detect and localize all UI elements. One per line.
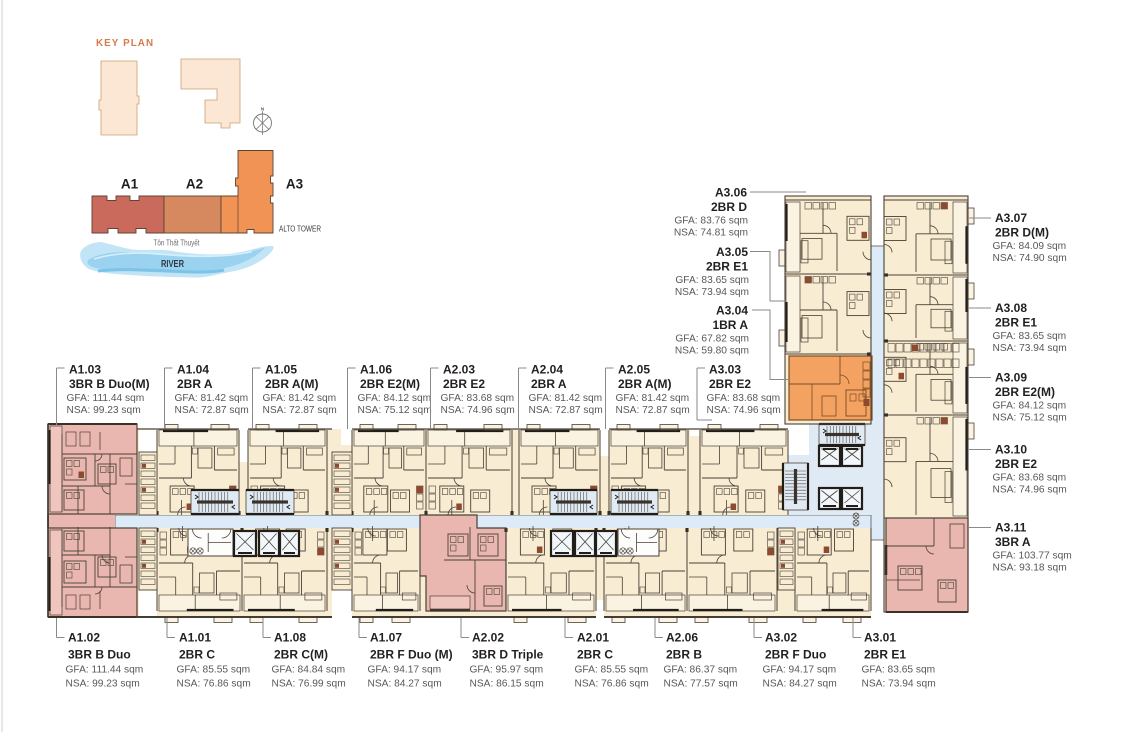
svg-text:NSA: 72.87 sqm: NSA: 72.87 sqm: [529, 405, 603, 416]
svg-text:A1.08: A1.08: [274, 631, 306, 645]
svg-text:A3.09: A3.09: [995, 371, 1027, 385]
svg-text:N: N: [261, 107, 264, 112]
svg-text:GFA: 83.68 sqm: GFA: 83.68 sqm: [441, 393, 515, 404]
svg-text:GFA: 83.65 sqm: GFA: 83.65 sqm: [675, 275, 749, 286]
svg-text:2BR E1: 2BR E1: [864, 648, 906, 662]
svg-text:NSA: 84.27 sqm: NSA: 84.27 sqm: [368, 679, 442, 690]
svg-text:GFA: 81.42 sqm: GFA: 81.42 sqm: [529, 393, 603, 404]
svg-text:NSA: 74.96 sqm: NSA: 74.96 sqm: [707, 405, 781, 416]
svg-text:GFA: 83.65 sqm: GFA: 83.65 sqm: [993, 331, 1067, 342]
svg-text:NSA: 84.27 sqm: NSA: 84.27 sqm: [763, 679, 837, 690]
svg-text:A2.04: A2.04: [531, 363, 563, 377]
svg-text:A2: A2: [186, 177, 203, 192]
svg-text:3BR A: 3BR A: [995, 535, 1031, 549]
svg-text:2BR D(M): 2BR D(M): [995, 226, 1049, 240]
svg-text:GFA: 84.12 sqm: GFA: 84.12 sqm: [993, 401, 1067, 412]
svg-text:GFA: 94.17 sqm: GFA: 94.17 sqm: [763, 665, 837, 676]
svg-text:A2.05: A2.05: [618, 363, 650, 377]
svg-text:1BR A: 1BR A: [712, 318, 748, 332]
svg-text:A2.03: A2.03: [443, 363, 475, 377]
svg-text:3BR B Duo(M): 3BR B Duo(M): [69, 377, 150, 391]
svg-text:GFA: 103.77 sqm: GFA: 103.77 sqm: [993, 551, 1072, 562]
svg-text:NSA: 74.81 sqm: NSA: 74.81 sqm: [674, 228, 748, 239]
svg-text:GFA: 67.82 sqm: GFA: 67.82 sqm: [675, 334, 749, 345]
svg-text:2BR E1: 2BR E1: [706, 260, 748, 274]
svg-text:2BR E2: 2BR E2: [443, 377, 485, 391]
svg-text:GFA: 111.44 sqm: GFA: 111.44 sqm: [66, 665, 144, 676]
svg-text:NSA: 74.90 sqm: NSA: 74.90 sqm: [993, 253, 1067, 264]
svg-text:A1.06: A1.06: [360, 363, 392, 377]
svg-text:RIVER: RIVER: [161, 259, 185, 270]
svg-text:NSA: 59.80 sqm: NSA: 59.80 sqm: [675, 346, 749, 357]
svg-text:GFA: 85.55 sqm: GFA: 85.55 sqm: [177, 665, 251, 676]
svg-text:NSA: 72.87 sqm: NSA: 72.87 sqm: [175, 405, 249, 416]
svg-text:A2.06: A2.06: [666, 631, 698, 645]
svg-text:A3.10: A3.10: [995, 443, 1027, 457]
svg-text:2BR A: 2BR A: [531, 377, 567, 391]
svg-text:A1.03: A1.03: [69, 363, 101, 377]
svg-text:NSA: 77.57 sqm: NSA: 77.57 sqm: [664, 679, 738, 690]
svg-text:GFA: 111.44 sqm: GFA: 111.44 sqm: [67, 393, 145, 404]
svg-text:2BR A(M): 2BR A(M): [618, 377, 672, 391]
svg-text:A3: A3: [286, 177, 304, 192]
svg-text:A3.05: A3.05: [716, 245, 748, 259]
svg-text:A1.01: A1.01: [179, 631, 211, 645]
svg-text:ALTO TOWER: ALTO TOWER: [279, 224, 321, 234]
svg-text:A3.07: A3.07: [995, 211, 1027, 225]
svg-text:A3.02: A3.02: [765, 631, 797, 645]
svg-text:2BR A: 2BR A: [177, 377, 213, 391]
svg-text:2BR F Duo: 2BR F Duo: [765, 648, 826, 662]
svg-text:GFA: 86.37 sqm: GFA: 86.37 sqm: [664, 665, 738, 676]
svg-text:GFA: 83.65 sqm: GFA: 83.65 sqm: [862, 665, 936, 676]
svg-text:A1.07: A1.07: [370, 631, 402, 645]
svg-text:GFA: 84.12 sqm: GFA: 84.12 sqm: [358, 393, 432, 404]
svg-text:2BR F Duo (M): 2BR F Duo (M): [370, 648, 453, 662]
svg-text:GFA: 81.42 sqm: GFA: 81.42 sqm: [616, 393, 690, 404]
svg-text:2BR E2(M): 2BR E2(M): [360, 377, 420, 391]
svg-text:NSA: 72.87 sqm: NSA: 72.87 sqm: [263, 405, 337, 416]
svg-text:GFA: 84.09 sqm: GFA: 84.09 sqm: [993, 241, 1067, 252]
svg-text:A3.01: A3.01: [864, 631, 896, 645]
svg-text:NSA: 75.12 sqm: NSA: 75.12 sqm: [358, 405, 432, 416]
svg-text:NSA: 73.94 sqm: NSA: 73.94 sqm: [993, 343, 1067, 354]
svg-text:2BR C: 2BR C: [577, 648, 613, 662]
svg-text:A3.08: A3.08: [995, 301, 1027, 315]
svg-text:3BR D Triple: 3BR D Triple: [472, 648, 544, 662]
svg-text:A3.11: A3.11: [995, 521, 1027, 535]
svg-text:GFA: 83.68 sqm: GFA: 83.68 sqm: [707, 393, 781, 404]
svg-text:GFA: 95.97 sqm: GFA: 95.97 sqm: [470, 665, 544, 676]
svg-text:A1.02: A1.02: [68, 631, 100, 645]
svg-text:GFA: 83.76 sqm: GFA: 83.76 sqm: [674, 216, 748, 227]
svg-text:NSA: 72.87 sqm: NSA: 72.87 sqm: [616, 405, 690, 416]
svg-text:NSA: 86.15 sqm: NSA: 86.15 sqm: [470, 679, 544, 690]
svg-text:A3.03: A3.03: [709, 363, 741, 377]
svg-text:NSA: 73.94 sqm: NSA: 73.94 sqm: [862, 679, 936, 690]
svg-text:2BR E2(M): 2BR E2(M): [995, 385, 1055, 399]
svg-text:GFA: 85.55 sqm: GFA: 85.55 sqm: [575, 665, 649, 676]
svg-text:2BR C(M): 2BR C(M): [274, 648, 328, 662]
svg-text:2BR B: 2BR B: [666, 648, 702, 662]
svg-text:Tôn Thất Thuyết: Tôn Thất Thuyết: [154, 239, 201, 248]
svg-text:A2.01: A2.01: [577, 631, 609, 645]
svg-text:2BR A(M): 2BR A(M): [265, 377, 319, 391]
svg-text:2BR D: 2BR D: [711, 200, 747, 214]
svg-text:NSA: 99.23 sqm: NSA: 99.23 sqm: [66, 679, 140, 690]
svg-text:A3.06: A3.06: [715, 186, 747, 200]
svg-text:A1: A1: [121, 177, 139, 192]
svg-text:NSA: 76.86 sqm: NSA: 76.86 sqm: [575, 679, 649, 690]
svg-text:NSA: 74.96 sqm: NSA: 74.96 sqm: [441, 405, 515, 416]
svg-text:GFA: 83.68 sqm: GFA: 83.68 sqm: [993, 473, 1067, 484]
svg-text:GFA: 84.84 sqm: GFA: 84.84 sqm: [272, 665, 346, 676]
svg-text:3BR B Duo: 3BR B Duo: [68, 648, 131, 662]
svg-text:GFA: 94.17 sqm: GFA: 94.17 sqm: [368, 665, 442, 676]
svg-text:2BR E2: 2BR E2: [709, 377, 751, 391]
svg-text:NSA: 74.96 sqm: NSA: 74.96 sqm: [993, 485, 1067, 496]
svg-text:A1.04: A1.04: [177, 363, 209, 377]
svg-text:NSA: 93.18 sqm: NSA: 93.18 sqm: [993, 563, 1067, 574]
svg-text:A2.02: A2.02: [472, 631, 504, 645]
svg-text:NSA: 99.23 sqm: NSA: 99.23 sqm: [67, 405, 141, 416]
svg-text:GFA: 81.42 sqm: GFA: 81.42 sqm: [175, 393, 249, 404]
svg-text:2BR C: 2BR C: [179, 648, 215, 662]
svg-text:2BR E2: 2BR E2: [995, 457, 1037, 471]
svg-text:A1.05: A1.05: [265, 363, 297, 377]
svg-text:KEY PLAN: KEY PLAN: [96, 38, 154, 49]
svg-text:NSA: 76.86 sqm: NSA: 76.86 sqm: [177, 679, 251, 690]
svg-text:A3.04: A3.04: [716, 304, 748, 318]
svg-text:NSA: 75.12 sqm: NSA: 75.12 sqm: [993, 413, 1067, 424]
svg-text:NSA: 73.94 sqm: NSA: 73.94 sqm: [675, 287, 749, 298]
svg-text:GFA: 81.42 sqm: GFA: 81.42 sqm: [263, 393, 337, 404]
svg-text:NSA: 76.99 sqm: NSA: 76.99 sqm: [272, 679, 346, 690]
svg-text:2BR E1: 2BR E1: [995, 316, 1037, 330]
